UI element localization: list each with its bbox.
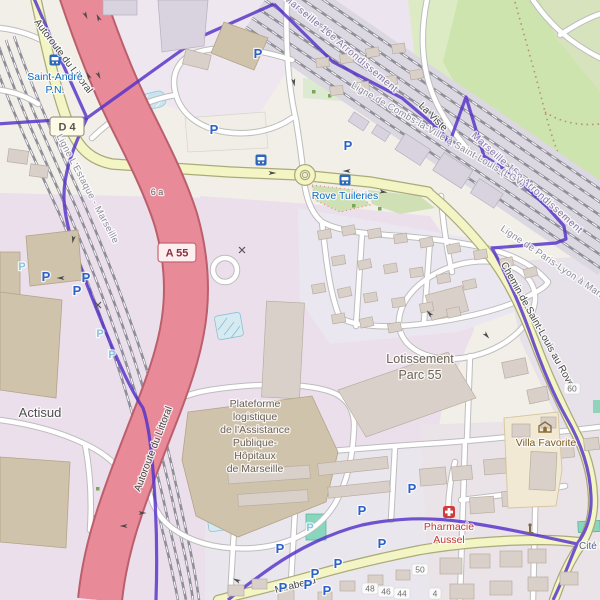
- pharmacie-label-1: Pharmacie: [424, 521, 474, 533]
- water-basin-1: [214, 312, 244, 340]
- house-number: 60: [567, 384, 577, 394]
- parking-icon-private: P: [108, 349, 115, 361]
- svg-text:de l'Assistance: de l'Assistance: [220, 424, 290, 436]
- building: [29, 164, 48, 178]
- motorway-ref-shield: A 55: [158, 243, 196, 262]
- parking-icon: P: [42, 269, 51, 284]
- building-actisud: [0, 457, 70, 548]
- bus-label-rove-tuileries: Rove Tuileries: [312, 190, 379, 202]
- lotissement-label-1: Lotissement: [386, 352, 454, 366]
- parking-icon: P: [304, 577, 313, 592]
- house-number: 50: [415, 565, 425, 575]
- house-number: 46: [381, 587, 391, 597]
- d4-ref-shield: D 4: [50, 117, 84, 136]
- svg-text:logistique: logistique: [233, 411, 278, 423]
- house-number: 48: [365, 584, 375, 594]
- svg-text:D 4: D 4: [58, 122, 76, 134]
- parking-icon: P: [358, 503, 367, 518]
- parking-icon: P: [334, 556, 343, 571]
- parking-icon: P: [378, 536, 387, 551]
- building: [0, 292, 62, 398]
- parking-icon: P: [82, 270, 91, 285]
- parking-icon: P: [254, 46, 263, 61]
- building: [103, 0, 137, 15]
- building: [7, 149, 29, 165]
- pharmacie-label-2: Aussel: [433, 534, 465, 546]
- parking-icon: P: [344, 138, 353, 153]
- house-number: 4: [433, 589, 438, 599]
- building: [262, 301, 305, 399]
- pharmacy-icon[interactable]: [443, 506, 455, 518]
- svg-text:Plateforme: Plateforme: [230, 398, 281, 410]
- svg-text:Hôpitaux: Hôpitaux: [234, 450, 276, 462]
- parking-icon: P: [73, 283, 82, 298]
- parking-icon: P: [408, 481, 417, 496]
- house-number: 44: [397, 589, 407, 599]
- svg-text:Publique-: Publique-: [233, 437, 278, 449]
- pitch-teal-corner: [593, 400, 600, 413]
- junction-ref-label: 6 a: [151, 187, 164, 197]
- place-label-actisud: Actisud: [19, 405, 62, 420]
- parking-icon-private: P: [306, 522, 313, 534]
- svg-text:de Marseille: de Marseille: [227, 463, 284, 475]
- parking-icon: P: [210, 122, 219, 137]
- cite-label: Cité S: [579, 541, 600, 552]
- map-canvas[interactable]: Autoroute du Littoral Autoroute du Litto…: [0, 0, 600, 600]
- bus-label-saint-andre-1: Saint-André: [27, 71, 83, 83]
- parking-icon-private: P: [18, 261, 25, 273]
- villa-favorite-label: Villa Favorite: [516, 437, 577, 449]
- lotissement-label-2: Parc 55: [398, 368, 441, 382]
- building: [512, 424, 530, 437]
- bus-stop-icon-rove-tuileries[interactable]: [340, 175, 351, 186]
- bus-label-saint-andre-2: P.N.: [45, 84, 64, 96]
- building: [158, 0, 208, 52]
- building: [529, 451, 557, 490]
- parking-icon: P: [276, 541, 285, 556]
- bus-stop-icon-rove-west[interactable]: [256, 155, 267, 166]
- parking-icon-private: P: [96, 328, 103, 340]
- svg-text:A 55: A 55: [166, 248, 189, 260]
- parking-icon: P: [323, 583, 332, 598]
- parking-icon: P: [279, 580, 288, 595]
